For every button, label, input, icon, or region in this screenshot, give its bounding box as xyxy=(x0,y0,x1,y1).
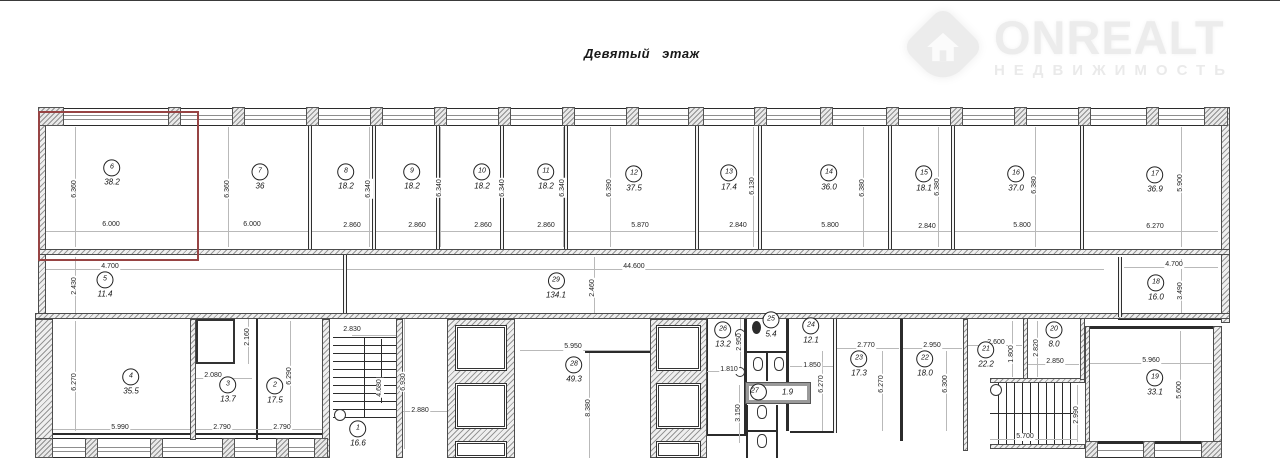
dimension-label: 5.950 xyxy=(563,343,583,351)
room-number: 24 xyxy=(802,317,819,334)
room-area: 18.2 xyxy=(403,181,421,190)
room-label-1: 116.6 xyxy=(349,420,367,447)
window-pier xyxy=(1014,107,1027,126)
dimension-label: 6.340 xyxy=(365,179,373,199)
hatched-wall xyxy=(990,444,1085,449)
dimension-label: 2.460 xyxy=(589,278,597,298)
room-area: 13.7 xyxy=(219,394,237,403)
dimension-label: 5.600 xyxy=(1176,380,1184,400)
house-pin-icon xyxy=(902,6,984,88)
wall-segment xyxy=(766,353,768,381)
stair-step xyxy=(333,353,396,354)
room-label-23: 2317.3 xyxy=(850,350,868,377)
room-area: 33.1 xyxy=(1146,387,1164,396)
hatched-wall xyxy=(38,249,1230,255)
room-area: 1.9 xyxy=(781,388,794,397)
room-area: 36 xyxy=(252,181,269,190)
room-area: 17.4 xyxy=(720,182,738,191)
room-number: 25 xyxy=(763,311,780,328)
window-pier xyxy=(1204,107,1228,126)
room-number: 19 xyxy=(1146,369,1163,386)
room-label-14: 1436.0 xyxy=(820,164,838,191)
room-label-27: 271.9 xyxy=(750,384,794,401)
room-number: 10 xyxy=(473,163,490,180)
dimension-label: 2.850 xyxy=(1045,358,1065,366)
room-area: 11.4 xyxy=(97,289,114,298)
wall-segment xyxy=(786,319,789,431)
window-pier xyxy=(950,107,963,126)
dimension-label: 5.800 xyxy=(820,222,840,230)
window-pier xyxy=(222,438,235,458)
dimension-line xyxy=(46,231,1218,232)
window-pier xyxy=(886,107,899,126)
room-area: 18.2 xyxy=(473,181,491,190)
hatched-wall xyxy=(1213,326,1222,453)
dimension-label: 2.790 xyxy=(272,424,292,432)
room-label-12: 1237.5 xyxy=(625,165,643,192)
dimension-label: 2.430 xyxy=(71,276,79,296)
elevator-car xyxy=(455,441,507,458)
room-area: 17.5 xyxy=(266,395,284,404)
room-label-3: 313.7 xyxy=(219,376,237,403)
dimension-label: 2.160 xyxy=(244,327,252,347)
elevator-car xyxy=(455,383,507,429)
wall-segment xyxy=(1085,326,1222,329)
logo-brand: ONREALT xyxy=(994,15,1234,61)
window-pier xyxy=(1085,441,1098,458)
elevator-car xyxy=(656,383,701,429)
elevator-car xyxy=(656,325,701,371)
wall-segment xyxy=(706,434,746,436)
room-number: 29 xyxy=(548,272,565,289)
stair-step xyxy=(333,393,396,394)
dimension-label: 2.860 xyxy=(536,222,556,230)
room-number: 18 xyxy=(1147,274,1164,291)
stair-step xyxy=(333,401,396,402)
room-number: 16 xyxy=(1007,165,1024,182)
window-pier xyxy=(1201,441,1222,458)
window-pier xyxy=(1146,107,1159,126)
stair-step xyxy=(1038,383,1039,444)
partition-wall xyxy=(308,125,312,250)
dimension-line xyxy=(520,350,652,351)
dimension-label: 1.810 xyxy=(719,366,739,374)
room-number: 12 xyxy=(625,165,642,182)
dimension-label: 6.270 xyxy=(71,372,79,392)
room-label-9: 918.2 xyxy=(403,163,421,190)
room-label-19: 1933.1 xyxy=(1146,369,1164,396)
room-label-8: 818.2 xyxy=(337,163,355,190)
logo-subtitle: НЕДВИЖИМОСТЬ xyxy=(994,62,1234,79)
room-number: 5 xyxy=(97,271,114,288)
stair-circle xyxy=(334,409,346,421)
toilet-fixture xyxy=(757,405,767,419)
wall-segment xyxy=(900,319,903,441)
room-number: 14 xyxy=(820,164,837,181)
room-area: 22.2 xyxy=(977,359,995,368)
room-area: 38.2 xyxy=(103,177,121,186)
dimension-label: 2.790 xyxy=(212,424,232,432)
room-label-2: 217.5 xyxy=(266,377,284,404)
dimension-line xyxy=(352,335,396,336)
dimension-label: 6.130 xyxy=(749,176,757,196)
stair-step xyxy=(333,369,396,370)
stair-step xyxy=(333,337,396,338)
dimension-label: 6.380 xyxy=(859,178,867,198)
dimension-label: 2.950 xyxy=(922,342,942,350)
dimension-label: 2.840 xyxy=(728,222,748,230)
window-pier xyxy=(35,438,53,458)
partition-wall xyxy=(1080,125,1084,250)
toilet-fixture-dark xyxy=(752,321,761,334)
stair-circle xyxy=(990,384,1002,396)
dimension-label: 6.300 xyxy=(942,374,950,394)
wall-segment xyxy=(196,433,322,435)
hatched-wall xyxy=(963,319,968,451)
room-number: 15 xyxy=(915,165,932,182)
dimension-label: 2.950 xyxy=(736,332,744,352)
window-pier xyxy=(370,107,383,126)
elevator-car xyxy=(656,441,701,458)
room-label-10: 1018.2 xyxy=(473,163,491,190)
dimension-label: 3.150 xyxy=(735,403,743,423)
window-pier xyxy=(434,107,447,126)
room-label-5: 511.4 xyxy=(97,271,114,298)
stair-step xyxy=(333,361,396,362)
dimension-label: 2.830 xyxy=(342,326,362,334)
room-label-11: 1118.2 xyxy=(537,163,555,190)
dimension-label: 6.000 xyxy=(242,221,262,229)
stair-step xyxy=(1070,383,1071,444)
floor-title: Девятый этаж xyxy=(584,46,700,61)
room-label-17: 1736.9 xyxy=(1146,166,1164,193)
room-label-28: 2849.3 xyxy=(565,356,583,383)
dimension-label: 4.700 xyxy=(100,263,120,271)
room-area: 12.1 xyxy=(802,335,820,344)
stair-step xyxy=(1006,383,1007,444)
room-label-18: 1816.0 xyxy=(1147,274,1165,301)
room-label-6: 638.2 xyxy=(103,159,121,186)
room-area: 49.3 xyxy=(565,374,583,383)
dimension-label: 8.380 xyxy=(585,398,593,418)
room-number: 2 xyxy=(266,377,283,394)
onrealt-watermark-logo: ONREALT НЕДВИЖИМОСТЬ xyxy=(914,15,1234,79)
stair-step xyxy=(1046,383,1047,444)
dimension-label: 6.290 xyxy=(286,366,294,386)
window-pier xyxy=(626,107,639,126)
room-label-21: 2122.2 xyxy=(977,341,995,368)
dimension-label: 6.390 xyxy=(606,178,614,198)
room-label-16: 1637.0 xyxy=(1007,165,1025,192)
hatched-wall xyxy=(990,378,1085,383)
room-area: 18.2 xyxy=(337,181,355,190)
room-label-24: 2412.1 xyxy=(802,317,820,344)
dimension-label: 5.800 xyxy=(1012,222,1032,230)
dimension-label: 3.490 xyxy=(1177,281,1185,301)
dimension-label: 6.340 xyxy=(436,178,444,198)
room-number: 17 xyxy=(1146,166,1163,183)
toilet-fixture xyxy=(774,357,784,371)
dimension-label: 5.900 xyxy=(1177,173,1185,193)
room-area: 36.0 xyxy=(820,182,838,191)
dimension-label: 6.380 xyxy=(1031,175,1039,195)
dimension-label: 1.850 xyxy=(802,362,822,370)
partition-wall xyxy=(1118,257,1122,317)
house-icon xyxy=(923,27,963,67)
room-number: 6 xyxy=(103,159,120,176)
window-pier xyxy=(498,107,511,126)
room-number: 9 xyxy=(403,163,420,180)
room-number: 20 xyxy=(1046,321,1063,338)
dimension-label: 6.360 xyxy=(224,179,232,199)
dimension-label: 2.820 xyxy=(1033,338,1041,358)
room-area: 16.0 xyxy=(1147,292,1165,301)
dimension-label: 4.680 xyxy=(376,378,384,398)
dimension-line xyxy=(46,269,1104,270)
room-number: 3 xyxy=(219,376,236,393)
dimension-label: 2.840 xyxy=(917,223,937,231)
room-number: 8 xyxy=(337,163,354,180)
room-number: 13 xyxy=(720,164,737,181)
room-label-26: 2613.2 xyxy=(714,321,732,348)
dimension-label: 6.380 xyxy=(934,177,942,197)
wall-segment xyxy=(256,319,258,440)
shaft-box xyxy=(196,319,235,364)
room-number: 28 xyxy=(565,356,582,373)
partition-wall xyxy=(758,125,762,250)
wall-segment xyxy=(53,433,196,435)
room-area: 18.0 xyxy=(916,368,934,377)
window-pier xyxy=(85,438,98,458)
room-label-4: 435.5 xyxy=(122,368,140,395)
dimension-label: 5.960 xyxy=(1141,357,1161,365)
logo-text: ONREALT НЕДВИЖИМОСТЬ xyxy=(994,15,1234,79)
room-label-22: 2218.0 xyxy=(916,350,934,377)
stair-step xyxy=(333,345,396,346)
room-label-15: 1518.1 xyxy=(915,165,933,192)
dimension-label: 2.860 xyxy=(473,222,493,230)
dimension-label: 5.870 xyxy=(630,222,650,230)
stair-step xyxy=(1062,383,1063,444)
room-label-29: 29134.1 xyxy=(545,272,567,299)
dimension-label: 6.270 xyxy=(818,374,826,394)
dimension-label: 4.700 xyxy=(1164,261,1184,269)
stair-step xyxy=(333,377,396,378)
dimension-label: 6.270 xyxy=(1145,223,1165,231)
room-number: 22 xyxy=(916,350,933,367)
window-pier xyxy=(306,107,319,126)
dimension-label: 2.860 xyxy=(342,222,362,230)
stair-step xyxy=(1054,383,1055,444)
room-area: 18.2 xyxy=(537,181,555,190)
room-label-20: 208.0 xyxy=(1046,321,1063,348)
room-number: 1 xyxy=(349,420,366,437)
dimension-label: 2.990 xyxy=(1073,405,1081,425)
dimension-label: 2.770 xyxy=(856,342,876,350)
wall-segment xyxy=(790,431,833,433)
wall-segment xyxy=(990,413,1078,414)
room-area: 134.1 xyxy=(545,290,567,299)
partition-wall xyxy=(343,255,347,313)
window-pier xyxy=(562,107,575,126)
room-area: 37.0 xyxy=(1007,183,1025,192)
window-pier xyxy=(820,107,833,126)
dimension-label: 6.340 xyxy=(559,178,567,198)
window-pier xyxy=(232,107,245,126)
window-pier xyxy=(1143,441,1155,458)
room-area: 13.2 xyxy=(714,339,732,348)
elevator-car xyxy=(455,325,507,371)
dimension-label: 2.860 xyxy=(407,222,427,230)
partition-wall xyxy=(833,319,837,433)
window-pier xyxy=(688,107,704,126)
room-area: 8.0 xyxy=(1046,339,1063,348)
partition-wall xyxy=(695,125,699,250)
toilet-fixture xyxy=(753,357,763,371)
room-number: 7 xyxy=(252,163,269,180)
partition-wall xyxy=(888,125,892,250)
dimension-label: 5.700 xyxy=(1015,433,1035,441)
room-area: 35.5 xyxy=(122,386,140,395)
toilet-fixture xyxy=(757,434,767,448)
room-number: 21 xyxy=(977,341,994,358)
wall-segment xyxy=(746,430,778,432)
window-pier xyxy=(754,107,767,126)
room-area: 18.1 xyxy=(915,183,933,192)
window-pier xyxy=(1078,107,1091,126)
floor-plan-sheet: Девятый этаж ONREALT НЕДВИЖИМОСТЬ 116.62… xyxy=(0,0,1280,458)
room-area: 5.4 xyxy=(763,329,780,338)
wall-segment xyxy=(585,351,652,353)
dimension-label: 5.990 xyxy=(110,424,130,432)
partition-wall xyxy=(951,125,955,250)
room-area: 36.9 xyxy=(1146,184,1164,193)
room-area: 17.3 xyxy=(850,368,868,377)
room-area: 37.5 xyxy=(625,183,643,192)
hatched-wall xyxy=(1023,318,1028,380)
room-label-7: 736 xyxy=(252,163,269,190)
room-number: 27 xyxy=(750,384,767,401)
window-pier xyxy=(276,438,289,458)
room-number: 26 xyxy=(714,321,731,338)
room-number: 11 xyxy=(537,163,554,180)
window-pier xyxy=(150,438,163,458)
dimension-label: 6.270 xyxy=(878,374,886,394)
room-number: 23 xyxy=(850,350,867,367)
stair-step xyxy=(333,385,396,386)
hatched-wall xyxy=(1085,326,1090,451)
dimension-label: 2.880 xyxy=(410,407,430,415)
room-label-13: 1317.4 xyxy=(720,164,738,191)
room-label-25: 255.4 xyxy=(763,311,780,338)
room-number: 4 xyxy=(122,368,139,385)
dimension-label: 1.800 xyxy=(1008,344,1016,364)
dimension-label: 6.340 xyxy=(499,178,507,198)
dimension-label: 6.930 xyxy=(400,372,408,392)
dimension-label: 44.600 xyxy=(622,263,645,271)
hatched-wall xyxy=(1221,107,1230,323)
room-area: 16.6 xyxy=(349,438,367,447)
window-pier xyxy=(314,438,328,458)
